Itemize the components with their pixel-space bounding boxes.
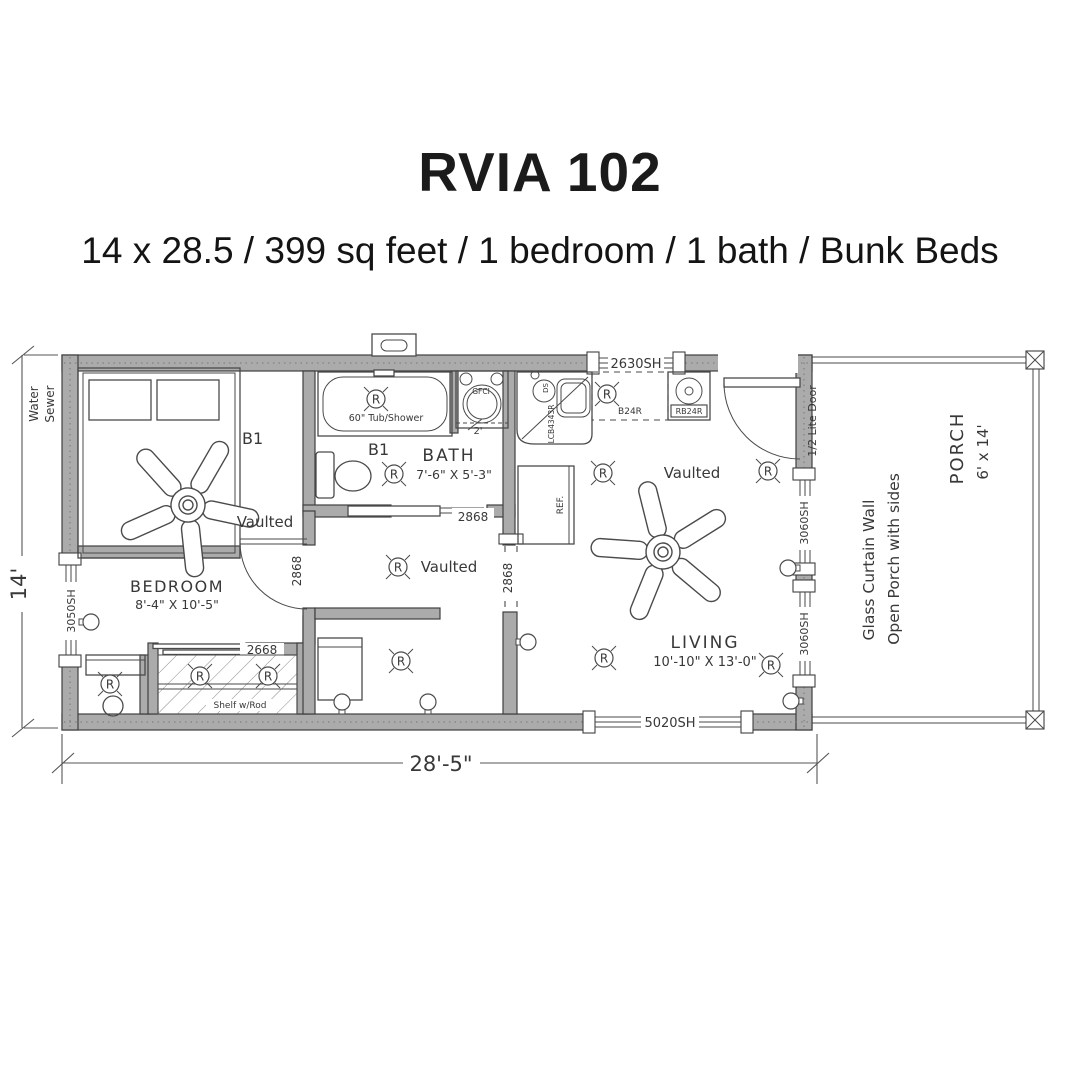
refrigerator: REF. [518,466,574,544]
bath: 60" Tub/Shower GFCI 2' B1 BATH 7'-6" X 5… [316,370,508,498]
closet-shelf-label: Shelf w/Rod [214,701,267,711]
corner-sink-cabinet: LCB4343R DS [517,371,592,444]
window-3060sh-1-label: 3060SH [798,501,811,544]
window-5020sh-label: 5020SH [644,716,695,731]
gfci-label: GFCI [472,387,490,396]
kitchen: LCB4343R DS B24R RB24R REF. [517,371,710,544]
bed-footboard [78,546,240,558]
sink-depth-label: 2' [473,426,482,437]
living-ceiling: Vaulted [664,464,721,482]
bath-size: 7'-6" X 5'-3" [416,467,492,482]
porch-post [1026,711,1044,729]
utilities: Water Sewer [27,385,57,422]
height-dim-label: 14' [7,568,31,601]
living-label: LIVING [670,633,739,653]
base-cabinet-label: B24R [618,407,642,417]
sink-note: DS [542,383,550,393]
bath-label: BATH [422,446,475,466]
hall: Vaulted [386,555,477,579]
closet: Shelf w/Rod [158,655,297,714]
living-size: 10'-10" X 13'-0" [653,655,757,670]
range-label: RB24R [676,407,703,416]
bath-pocket-door: 2868 [348,506,494,524]
tub-label: 60" Tub/Shower [349,413,424,424]
corner-sink-label: LCB4343R [547,405,556,444]
tub: 60" Tub/Shower [318,370,452,436]
bedroom-door-label: 2868 [290,556,304,587]
hall-opening-label: 2868 [501,563,515,594]
pillow [89,380,151,420]
porch-door-label: 1/2 Lite Door [806,385,819,457]
bedroom-door: 2868 [240,539,308,609]
bath-b1: B1 [368,440,389,459]
range: RB24R [668,372,710,420]
bunk-room [318,638,436,714]
dimension-width: 28'-5" [52,734,829,784]
bedroom-size: 8'-4" X 10'-5" [135,597,219,612]
floor-plan: R [0,0,1080,1080]
window-3060sh-2-label: 3060SH [798,612,811,655]
window-2630sh-label: 2630SH [610,357,661,372]
toilet [316,452,371,498]
pillow [157,380,219,420]
bath-door-label: 2868 [458,510,489,524]
hall-ceiling: Vaulted [421,558,478,576]
porch-post [1026,351,1044,369]
porch: Glass Curtain Wall Open Porch with sides… [812,351,1044,729]
water-label: Water [27,386,41,422]
roof-vent [372,334,416,356]
sewer-label: Sewer [43,385,57,422]
bedroom-b1: B1 [242,429,263,448]
window-3050sh-label: 3050SH [65,589,78,632]
width-dim-label: 28'-5" [409,752,472,776]
living: Vaulted LIVING 10'-10" X 13'-0" [569,457,803,709]
bedroom-label: BEDROOM [130,577,224,596]
desk-nook [86,655,145,716]
stool [103,696,123,716]
porch-label: PORCH [947,412,968,485]
bedroom: B1 Vaulted BEDROOM 8'-4" X 10'-5" [78,368,293,612]
porch-note-1: Glass Curtain Wall [860,500,878,641]
porch-size: 6' x 14' [974,424,992,479]
ceiling-fan-icon [569,457,764,653]
refrigerator-label: REF. [556,496,566,515]
bedroom-ceiling: Vaulted [237,513,294,531]
porch-note-2: Open Porch with sides [885,473,903,645]
